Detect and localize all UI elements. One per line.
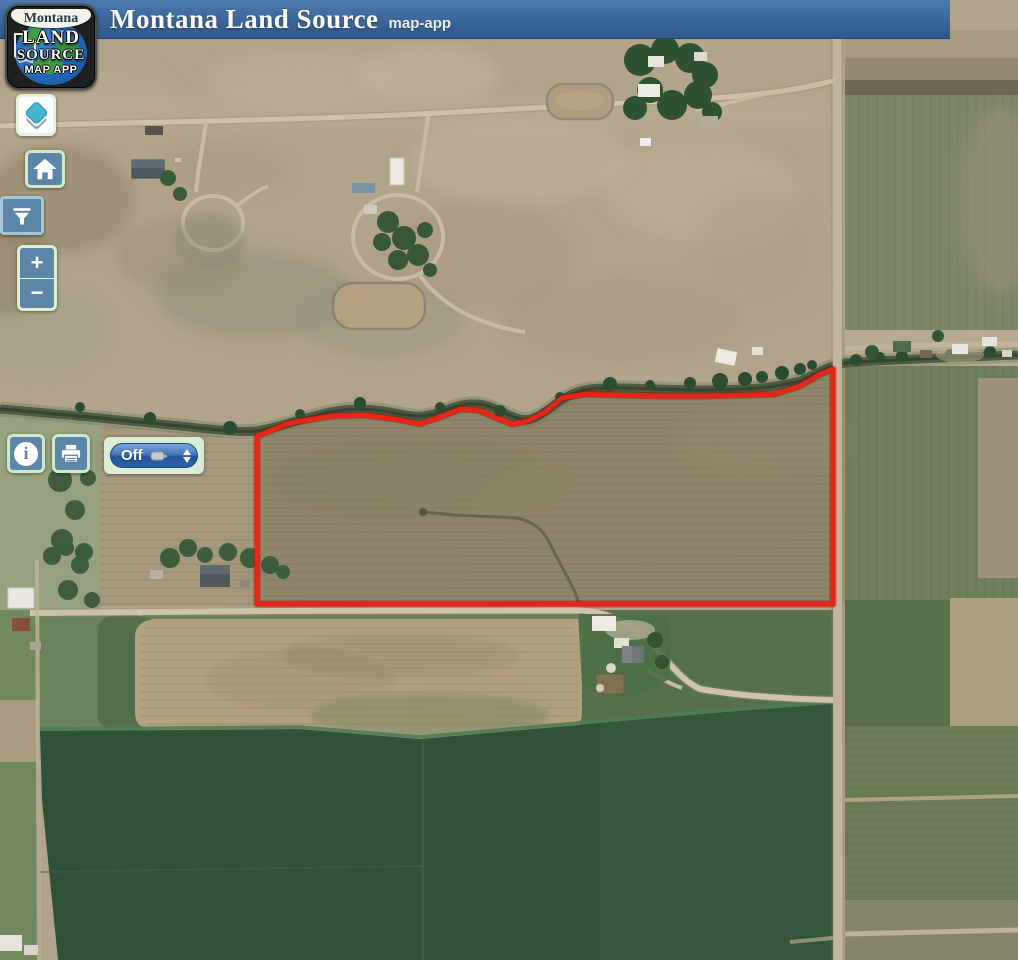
printer-icon	[58, 441, 84, 467]
layers-icon	[19, 98, 53, 132]
satellite-map-canvas[interactable]	[0, 0, 1018, 960]
measure-select-wrapper: Off	[104, 437, 204, 474]
southeast-farmstead	[578, 614, 671, 697]
logo-region-text: Montana	[24, 11, 78, 27]
zoom-in-button[interactable]: +	[20, 248, 54, 279]
logo-mapapp-text: MAP APP	[7, 64, 95, 76]
zoom-out-button[interactable]: −	[20, 279, 54, 309]
logo-banner: Montana	[11, 9, 91, 28]
info-icon: i	[14, 442, 38, 466]
measure-select-value: Off	[121, 447, 143, 464]
creek-shed	[752, 347, 763, 355]
app-subtitle: map-app	[389, 15, 452, 32]
home-icon	[31, 156, 59, 182]
filter-button[interactable]	[0, 196, 44, 235]
montana-land-source-logo[interactable]: Montana LAND SOURCE MAP APP	[5, 4, 97, 90]
app-title: Montana Land Source	[110, 4, 379, 35]
map-app-window: Montana Land Source map-app Montana LAND…	[0, 0, 1018, 960]
info-button[interactable]: i	[7, 434, 45, 473]
stepper-arrows-icon	[183, 449, 191, 463]
measure-tape-icon	[150, 450, 168, 462]
layers-button[interactable]	[16, 94, 56, 136]
measure-select[interactable]: Off	[110, 443, 198, 468]
home-button[interactable]	[25, 150, 65, 188]
filter-icon	[9, 203, 35, 229]
info-glyph: i	[23, 444, 28, 462]
logo-source-text: SOURCE	[7, 47, 95, 64]
print-button[interactable]	[52, 434, 90, 473]
plus-glyph: +	[31, 252, 44, 274]
header-bar: Montana Land Source map-app	[0, 0, 950, 39]
zoom-control: + −	[17, 245, 57, 311]
east-fields	[845, 30, 1018, 960]
minus-glyph: −	[31, 282, 44, 304]
riding-arena	[333, 283, 425, 329]
logo-land-text: LAND	[7, 27, 95, 49]
